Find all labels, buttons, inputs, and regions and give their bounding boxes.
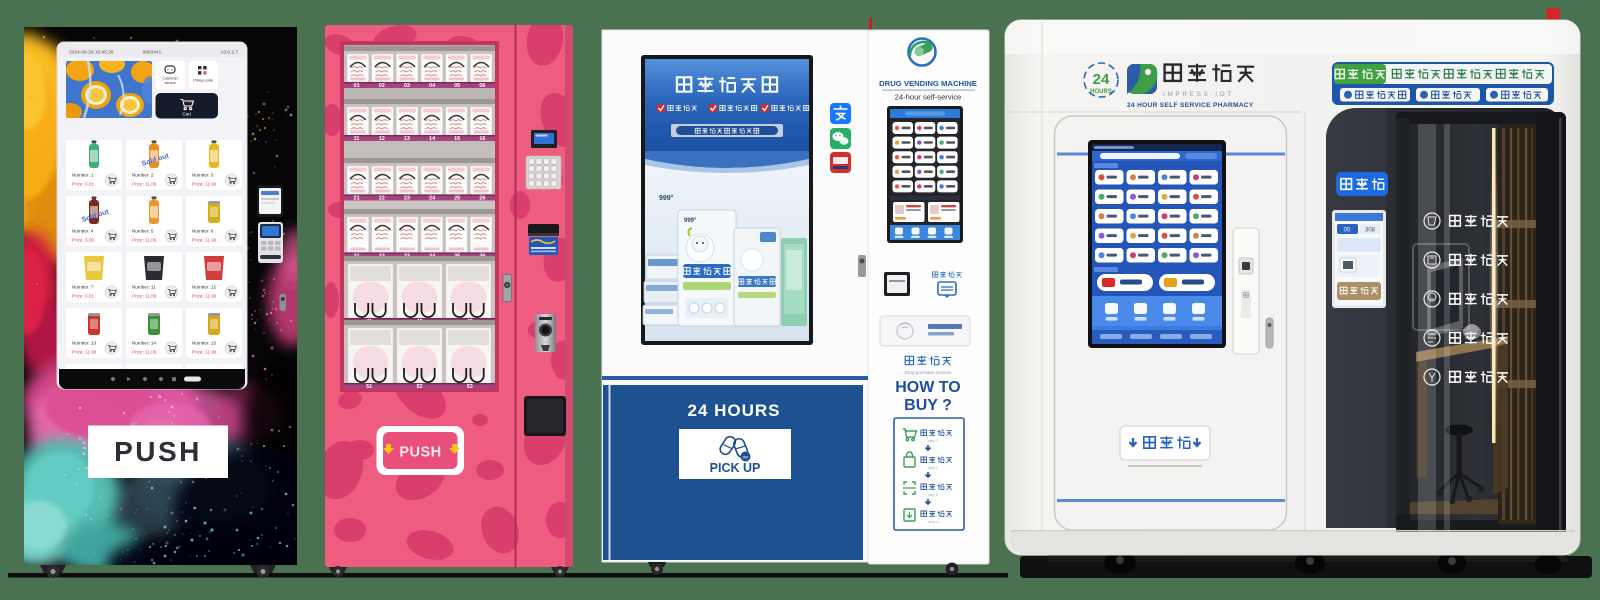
svg-text:Price: 11.00: Price: 11.00 bbox=[132, 294, 157, 299]
svg-text:06: 06 bbox=[479, 83, 485, 89]
svg-text:v3.6.2.7: v3.6.2.7 bbox=[221, 50, 238, 56]
svg-text:step 4: step 4 bbox=[928, 520, 938, 524]
svg-text:51: 51 bbox=[366, 384, 372, 390]
svg-text:2024-09-29 15:45:26: 2024-09-29 15:45:26 bbox=[69, 50, 114, 56]
svg-text:step 3: step 3 bbox=[928, 493, 938, 497]
svg-text:05: 05 bbox=[454, 83, 460, 89]
svg-text:BUY ?: BUY ? bbox=[904, 397, 952, 414]
svg-text:Price: 0.01: Price: 0.01 bbox=[72, 182, 94, 187]
svg-text:03: 03 bbox=[404, 83, 410, 89]
svg-text:Price: 0.01: Price: 0.01 bbox=[72, 294, 94, 299]
svg-text:52: 52 bbox=[416, 384, 422, 390]
svg-text:Number: 5: Number: 5 bbox=[132, 229, 154, 234]
svg-text:999°: 999° bbox=[684, 218, 697, 224]
svg-text:Drug purchase process: Drug purchase process bbox=[905, 370, 952, 375]
svg-text:PICK UP: PICK UP bbox=[710, 461, 761, 475]
svg-text:Number: 12: Number: 12 bbox=[192, 285, 216, 290]
svg-text:Price: 11.00: Price: 11.00 bbox=[192, 238, 217, 243]
svg-text:DRUG VENDING MACHINE: DRUG VENDING MACHINE bbox=[879, 79, 977, 88]
svg-text:Price: 11.00: Price: 11.00 bbox=[192, 182, 217, 187]
svg-text:02: 02 bbox=[379, 83, 385, 89]
svg-text:16: 16 bbox=[479, 136, 485, 142]
svg-text:Price: 11.00: Price: 11.00 bbox=[132, 350, 157, 355]
svg-text:Price: 11.00: Price: 11.00 bbox=[192, 294, 217, 299]
svg-text:04: 04 bbox=[429, 83, 436, 89]
svg-text:53: 53 bbox=[467, 384, 473, 390]
svg-text:IMPRESS·IOT: IMPRESS·IOT bbox=[1163, 91, 1234, 98]
svg-text:13: 13 bbox=[404, 136, 410, 142]
svg-text:Number: 2: Number: 2 bbox=[132, 173, 154, 178]
svg-text:Number: 14: Number: 14 bbox=[132, 341, 156, 346]
svg-text:PUSH: PUSH bbox=[399, 445, 441, 461]
svg-text:Price: 11.00: Price: 11.00 bbox=[132, 238, 157, 243]
svg-text:Customer: Customer bbox=[162, 77, 178, 81]
svg-text:Price: 11.00: Price: 11.00 bbox=[192, 350, 217, 355]
svg-text:Number: 7: Number: 7 bbox=[72, 285, 94, 290]
svg-text:Number: 1: Number: 1 bbox=[72, 173, 94, 178]
svg-text:Pickup code: Pickup code bbox=[193, 79, 213, 83]
svg-text:Number: 11: Number: 11 bbox=[132, 285, 156, 290]
svg-text:24-hour self-service: 24-hour self-service bbox=[895, 93, 962, 102]
svg-text:24: 24 bbox=[429, 196, 436, 202]
svg-text:01: 01 bbox=[354, 83, 360, 89]
svg-text:21: 21 bbox=[354, 196, 360, 202]
svg-text:Price: 11.00: Price: 11.00 bbox=[132, 182, 157, 187]
svg-text:308: 308 bbox=[1365, 228, 1376, 234]
svg-text:step 2: step 2 bbox=[928, 466, 938, 470]
svg-text:PUSH: PUSH bbox=[114, 436, 202, 467]
svg-text:12: 12 bbox=[379, 136, 385, 142]
svg-text:service: service bbox=[165, 81, 176, 85]
svg-text:22: 22 bbox=[379, 196, 385, 202]
svg-text:Number: 6: Number: 6 bbox=[192, 229, 214, 234]
svg-text:23: 23 bbox=[404, 196, 410, 202]
svg-text:Number: 13: Number: 13 bbox=[72, 341, 96, 346]
svg-text:15: 15 bbox=[454, 136, 460, 142]
svg-text:Price: 3.00: Price: 3.00 bbox=[72, 238, 94, 243]
svg-text:8883441: 8883441 bbox=[143, 50, 162, 56]
svg-text:00: 00 bbox=[1344, 228, 1351, 234]
svg-text:Number: 3: Number: 3 bbox=[192, 173, 214, 178]
svg-text:HOURS: HOURS bbox=[1090, 89, 1112, 95]
svg-text:999: 999 bbox=[743, 455, 749, 459]
svg-text:Number: 15: Number: 15 bbox=[192, 341, 216, 346]
svg-text:Price: 11.00: Price: 11.00 bbox=[72, 350, 97, 355]
svg-text:HOW TO: HOW TO bbox=[895, 379, 960, 396]
svg-text:11: 11 bbox=[354, 136, 360, 142]
svg-text:Number: 4: Number: 4 bbox=[72, 229, 94, 234]
svg-text:999°: 999° bbox=[659, 194, 674, 202]
svg-text:24 HOUR SELF SERVICE PHARMACY: 24 HOUR SELF SERVICE PHARMACY bbox=[1127, 102, 1254, 109]
svg-text:24 HOURS: 24 HOURS bbox=[687, 401, 780, 420]
svg-text:14: 14 bbox=[429, 136, 436, 142]
svg-text:24: 24 bbox=[1093, 71, 1110, 88]
svg-text:Cart: Cart bbox=[182, 112, 191, 117]
svg-text:26: 26 bbox=[479, 196, 485, 202]
svg-text:25: 25 bbox=[454, 196, 460, 202]
svg-text:step 1: step 1 bbox=[928, 439, 938, 443]
